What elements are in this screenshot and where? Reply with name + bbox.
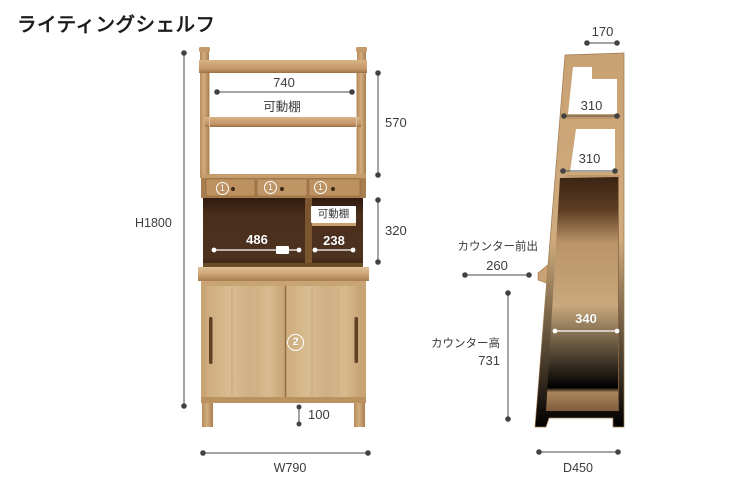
upper-height-value: 570: [385, 116, 407, 131]
shelf-width-value: 740: [263, 76, 305, 91]
drawer-marker-3: 1: [314, 181, 327, 194]
counter-inner-depth-value: 340: [566, 312, 606, 327]
movable-shelf-top-label: 可動棚: [251, 100, 313, 114]
counter-overhang-label: カウンター前出: [449, 241, 538, 254]
overall-height-label: H1800: [135, 216, 172, 230]
top-depth-value: 170: [587, 25, 618, 40]
cabinet-marker: 2: [287, 334, 304, 351]
dimension-line-niche-height: [375, 197, 381, 265]
drawer-marker-1: 1: [216, 182, 229, 195]
dimension-line-overall-depth: [536, 449, 621, 455]
counter-height-label: カウンター高: [426, 338, 500, 351]
outlet-plate: [276, 246, 289, 254]
diagram-drawing: [0, 0, 733, 492]
dimension-line-leg-height: [297, 405, 302, 427]
furniture-dimension-diagram: ライティングシェルフ H1800 740 可動棚 570 320 486 238…: [0, 0, 733, 492]
counter-overhang-value: 260: [467, 259, 527, 274]
overall-depth-label: D450: [548, 461, 608, 475]
dimension-line-top-depth: [584, 40, 620, 46]
dimension-line-counter-height: [505, 290, 511, 422]
dimension-line-overall-height: [181, 50, 187, 409]
dimension-line-upper-height: [375, 70, 381, 178]
drawer-marker-2: 1: [264, 181, 277, 194]
overall-width-label: W790: [260, 461, 320, 475]
niche-height-value: 320: [385, 224, 407, 239]
movable-shelf-right-label: 可動棚: [311, 206, 356, 223]
shelf-depth-upper-value: 310: [576, 99, 607, 114]
counter-height-value: 731: [430, 354, 500, 369]
leg-height-value: 100: [308, 408, 330, 423]
niche-right-width-value: 238: [314, 234, 354, 249]
dimension-line-overall-width: [200, 450, 371, 456]
niche-left-width-value: 486: [237, 233, 277, 248]
page-title: ライティングシェルフ: [17, 8, 215, 37]
shelf-depth-lower-value: 310: [574, 152, 605, 167]
